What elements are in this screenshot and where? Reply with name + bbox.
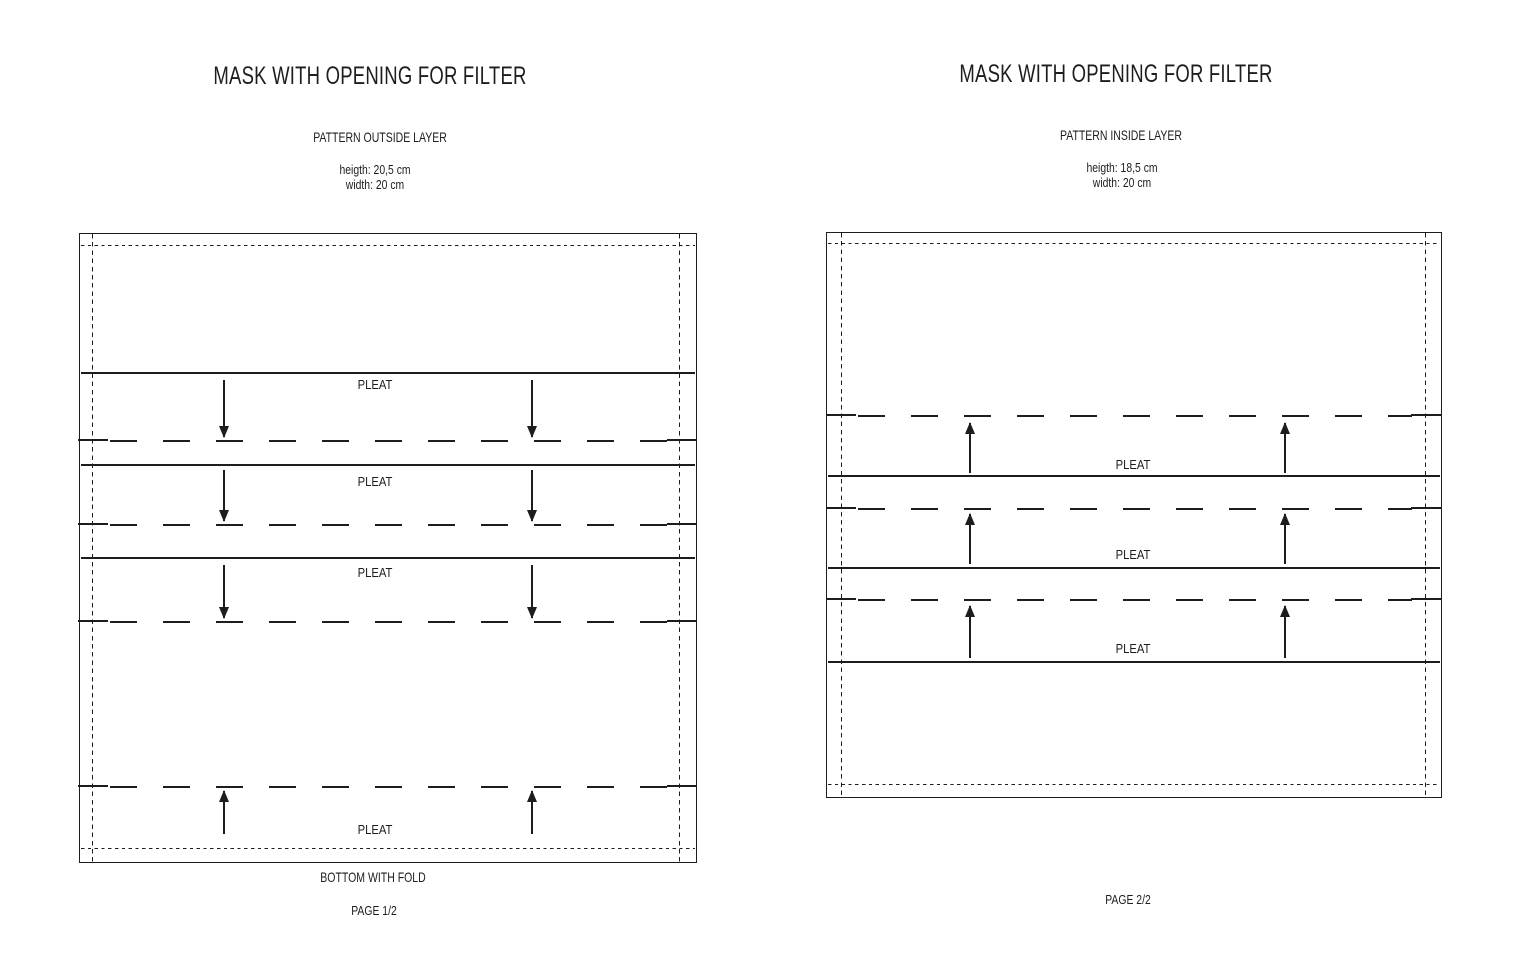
page1-notch-tick [667,620,697,622]
page1-notch-tick [78,439,108,441]
fold-direction-down-arrow [525,565,539,618]
page2-section-line-2 [828,567,1440,569]
page1-pleat-fold-line-1 [110,440,668,442]
page1-section-line-1 [81,372,695,374]
page2-pattern-outline [826,232,1442,798]
page2-pleat-label-2: PLEAT [1116,548,1151,562]
fold-direction-down-arrow [217,470,231,521]
fold-direction-up-arrow [1278,423,1292,473]
page2-section-line-3 [828,661,1440,663]
page2-title: MASK WITH OPENING FOR FILTER [959,60,1272,89]
fold-direction-down-arrow [525,470,539,521]
fold-direction-up-arrow [963,423,977,473]
fold-direction-down-arrow [217,380,231,437]
page1-notch-tick [78,523,108,525]
page1-width-dimension: width: 20 cm [346,177,404,192]
page1-title: MASK WITH OPENING FOR FILTER [213,62,526,91]
page2-notch-tick [1411,414,1441,416]
page2-notch-tick [826,598,856,600]
page2-seam-line-top [828,243,1440,244]
page2-notch-tick [1411,507,1441,509]
page1-pleat-label-2: PLEAT [358,475,393,489]
page2-page-number: PAGE 2/2 [1105,892,1150,907]
page1-bottom-fold-label: BOTTOM WITH FOLD [320,869,425,885]
page2-height-dimension: heigth: 18,5 cm [1086,160,1157,175]
page1-page-number: PAGE 1/2 [351,903,396,918]
page1-pleat-label-1: PLEAT [358,378,393,392]
page2-pleat-label-1: PLEAT [1116,458,1151,472]
page1-pleat-fold-line-2 [110,524,668,526]
page1-section-line-2 [81,464,695,466]
page2-pleat-fold-line-3 [858,599,1412,601]
fold-direction-up-arrow [1278,514,1292,564]
page1-subtitle: PATTERN OUTSIDE LAYER [313,129,447,145]
page2-pleat-fold-line-2 [858,508,1412,510]
fold-direction-up-arrow [525,791,539,834]
fold-direction-down-arrow [217,565,231,618]
page2-notch-tick [826,414,856,416]
fold-direction-up-arrow [963,606,977,658]
page2-notch-tick [826,507,856,509]
page2-seam-line-left [841,233,842,797]
fold-direction-up-arrow [217,791,231,834]
page2-pleat-fold-line-1 [858,415,1412,417]
page2-notch-tick [1411,598,1441,600]
page2-section-line-1 [828,475,1440,477]
page1-notch-tick [78,620,108,622]
page1-notch-tick [667,439,697,441]
page2-width-dimension: width: 20 cm [1093,175,1151,190]
page1-seam-line-right [679,234,680,862]
fold-direction-up-arrow [963,514,977,564]
page1-section-line-3 [81,557,695,559]
page2-pleat-label-3: PLEAT [1116,642,1151,656]
page1-seam-line-left [92,234,93,862]
page1-pattern-outline [79,233,697,863]
page1-notch-tick [78,785,108,787]
page1-seam-line-top [81,245,695,246]
page1-pleat-fold-line-3 [110,621,668,623]
sewing-pattern-sheet: MASK WITH OPENING FOR FILTER PATTERN OUT… [0,0,1536,960]
page2-seam-line-bottom [828,784,1440,785]
page1-pleat-label-4: PLEAT [358,823,393,837]
page1-notch-tick [667,785,697,787]
page2-seam-line-right [1425,233,1426,797]
fold-direction-down-arrow [525,380,539,437]
page1-notch-tick [667,523,697,525]
page1-pleat-label-3: PLEAT [358,566,393,580]
page1-seam-line-bottom [81,848,695,849]
page2-subtitle: PATTERN INSIDE LAYER [1060,127,1182,143]
fold-direction-up-arrow [1278,606,1292,658]
page1-pleat-fold-line-4 [110,786,668,788]
page1-height-dimension: heigth: 20,5 cm [339,162,410,177]
